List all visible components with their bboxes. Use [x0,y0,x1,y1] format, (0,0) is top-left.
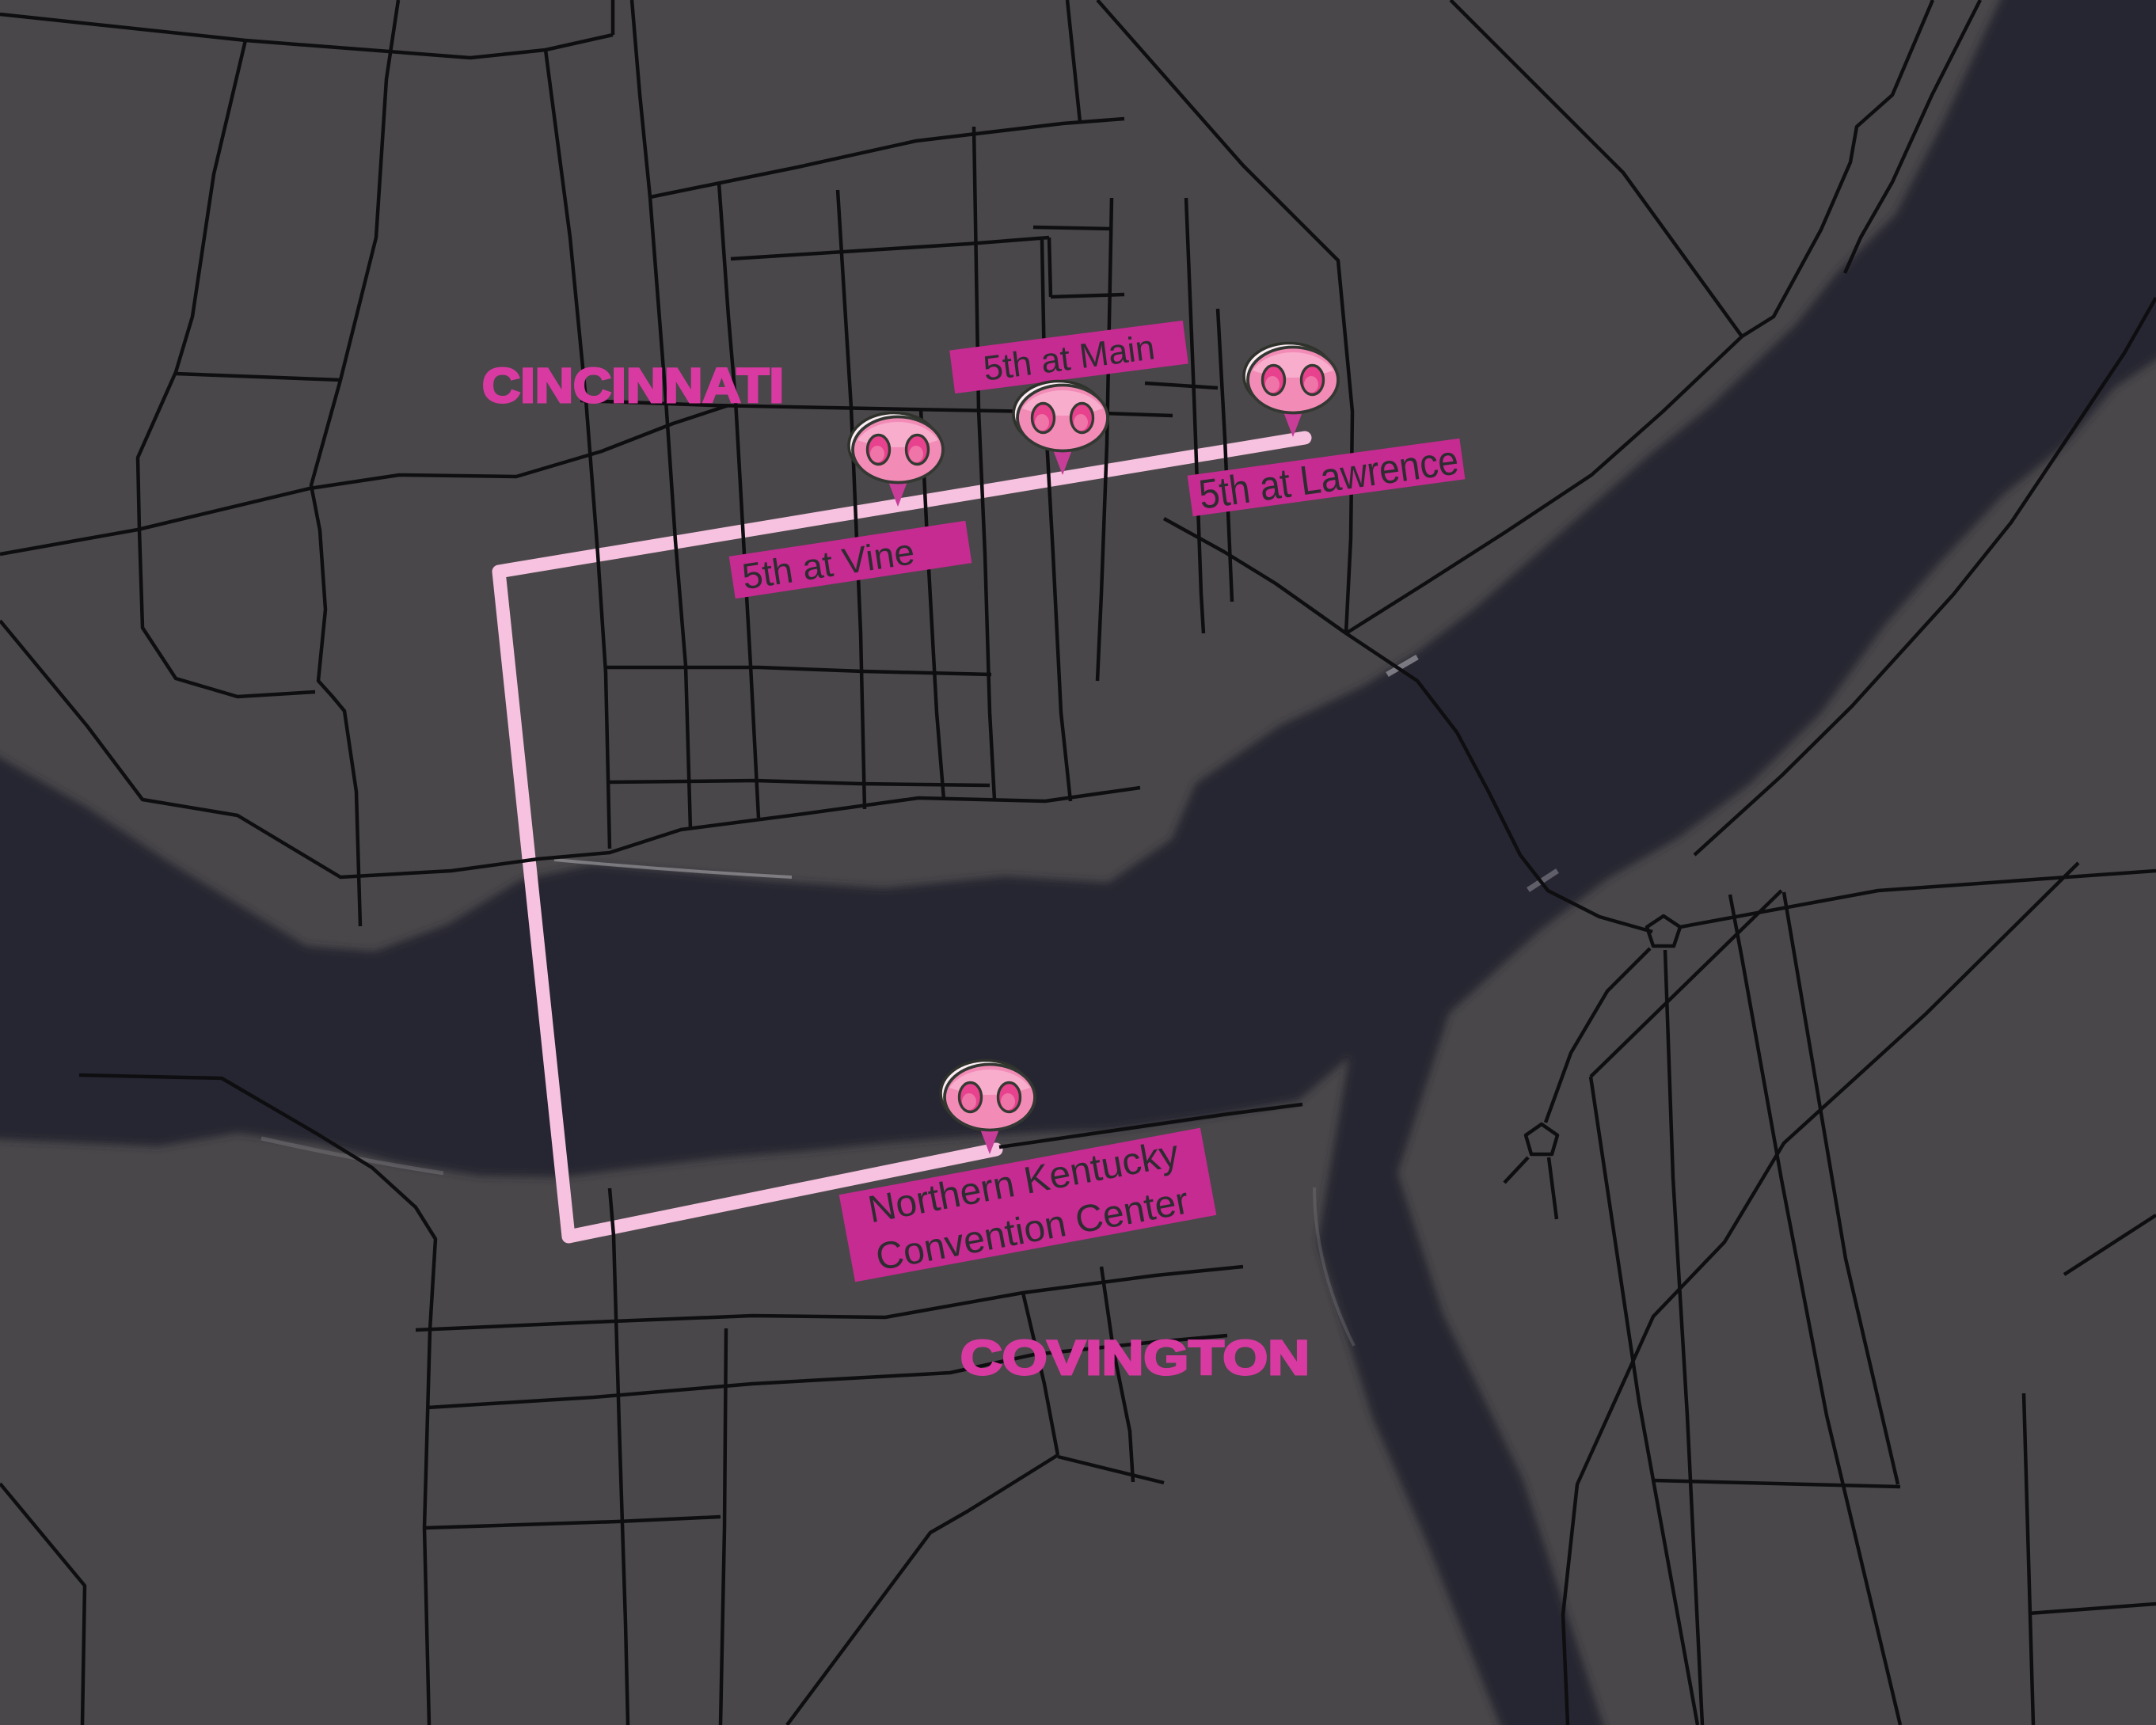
svg-text:CINCINNATI: CINCINNATI [482,359,784,412]
svg-text:COVINGTON: COVINGTON [960,1331,1310,1385]
